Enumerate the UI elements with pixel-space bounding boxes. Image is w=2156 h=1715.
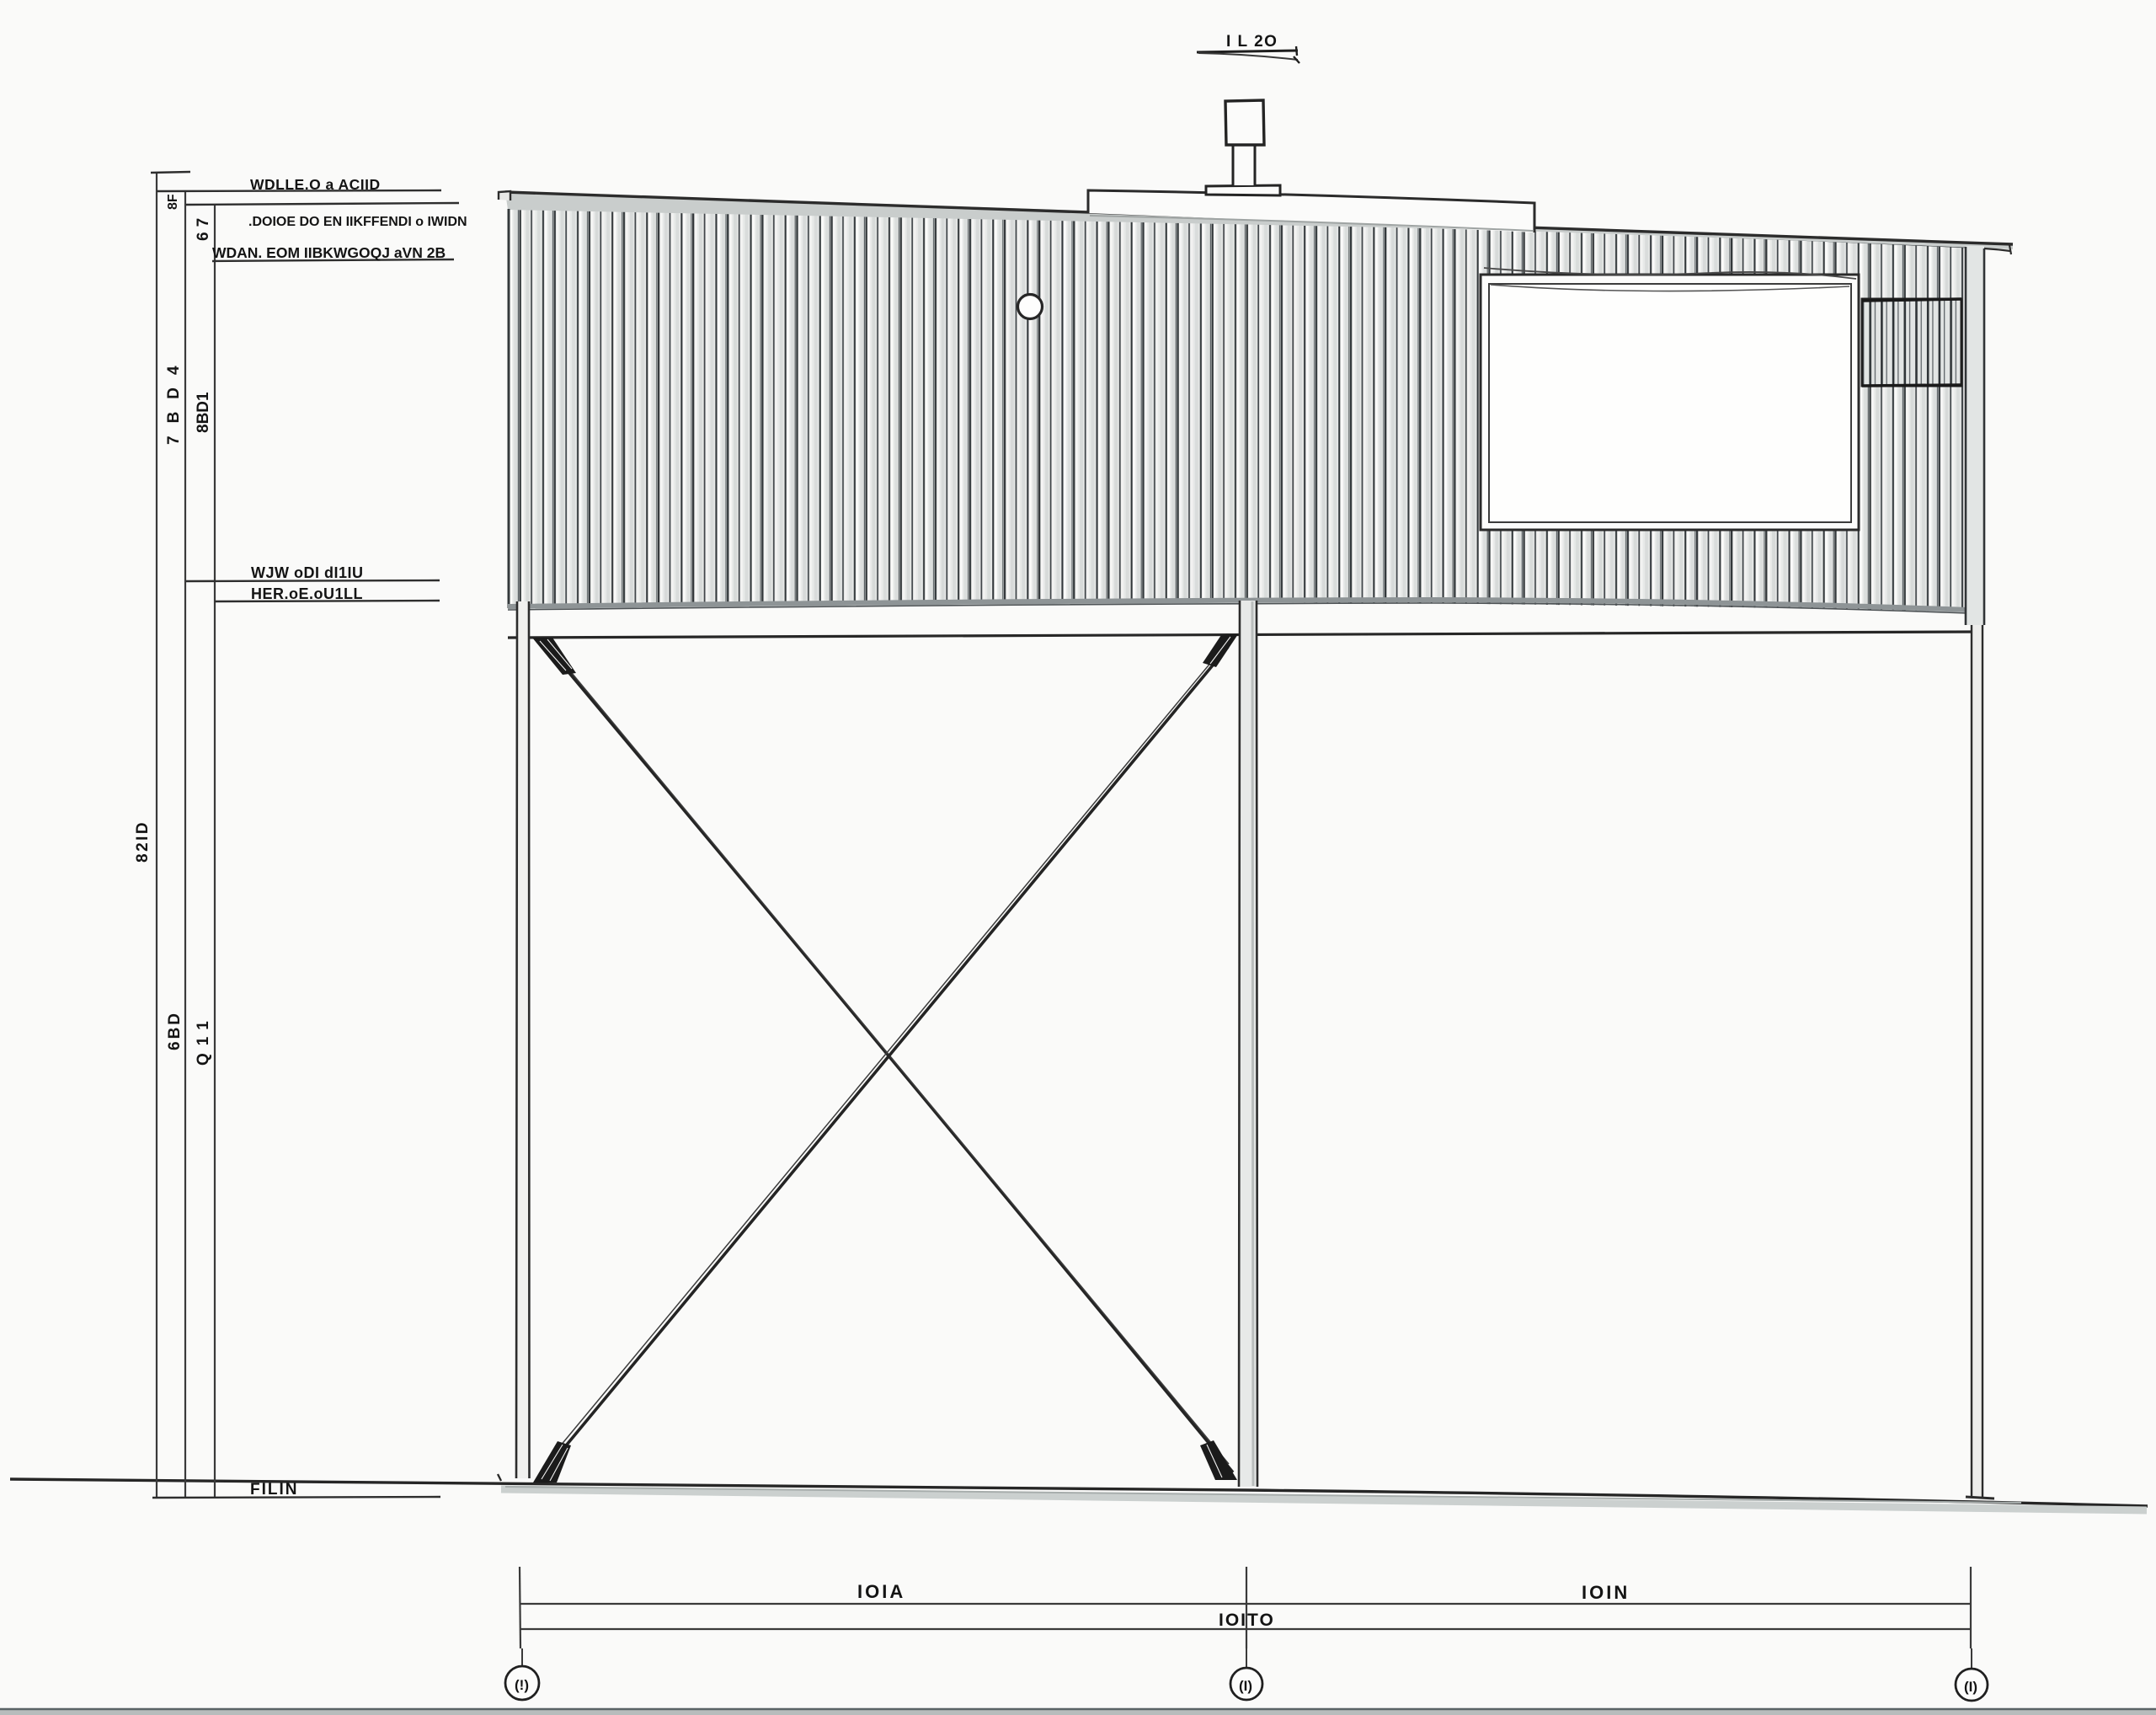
- svg-text:6BD: 6BD: [166, 1011, 184, 1050]
- svg-text:I L 2O: I L 2O: [1226, 33, 1278, 51]
- svg-text:IOIA: IOIA: [857, 1581, 905, 1602]
- svg-text:WDAN. EOM IIBKWGOQJ aVN 2B: WDAN. EOM IIBKWGOQJ aVN 2B: [212, 244, 446, 261]
- svg-text:7BD4: 7BD4: [165, 353, 183, 445]
- svg-text:WDLLE.O a ACIID: WDLLE.O a ACIID: [250, 176, 381, 193]
- svg-text:Q11: Q11: [195, 1013, 212, 1066]
- svg-text:8BD1: 8BD1: [195, 392, 212, 433]
- svg-text:67: 67: [195, 213, 212, 241]
- svg-text:82ID: 82ID: [134, 820, 152, 863]
- svg-text:.DOIOE DO EN IIKFFENDI o IWIDN: .DOIOE DO EN IIKFFENDI o IWIDN: [248, 215, 467, 229]
- svg-text:(I): (I): [1239, 1678, 1252, 1694]
- svg-text:(!): (!): [515, 1677, 529, 1693]
- svg-text:HER.oE.oU1LL: HER.oE.oU1LL: [251, 585, 363, 602]
- svg-text:IOITO: IOITO: [1219, 1611, 1275, 1630]
- svg-text:FILIN: FILIN: [250, 1481, 299, 1499]
- svg-text:(I): (I): [1964, 1679, 1977, 1695]
- svg-text:WJW oDI dI1IU: WJW oDI dI1IU: [251, 564, 364, 581]
- svg-text:8F: 8F: [166, 194, 180, 210]
- svg-text:IOIN: IOIN: [1582, 1582, 1630, 1603]
